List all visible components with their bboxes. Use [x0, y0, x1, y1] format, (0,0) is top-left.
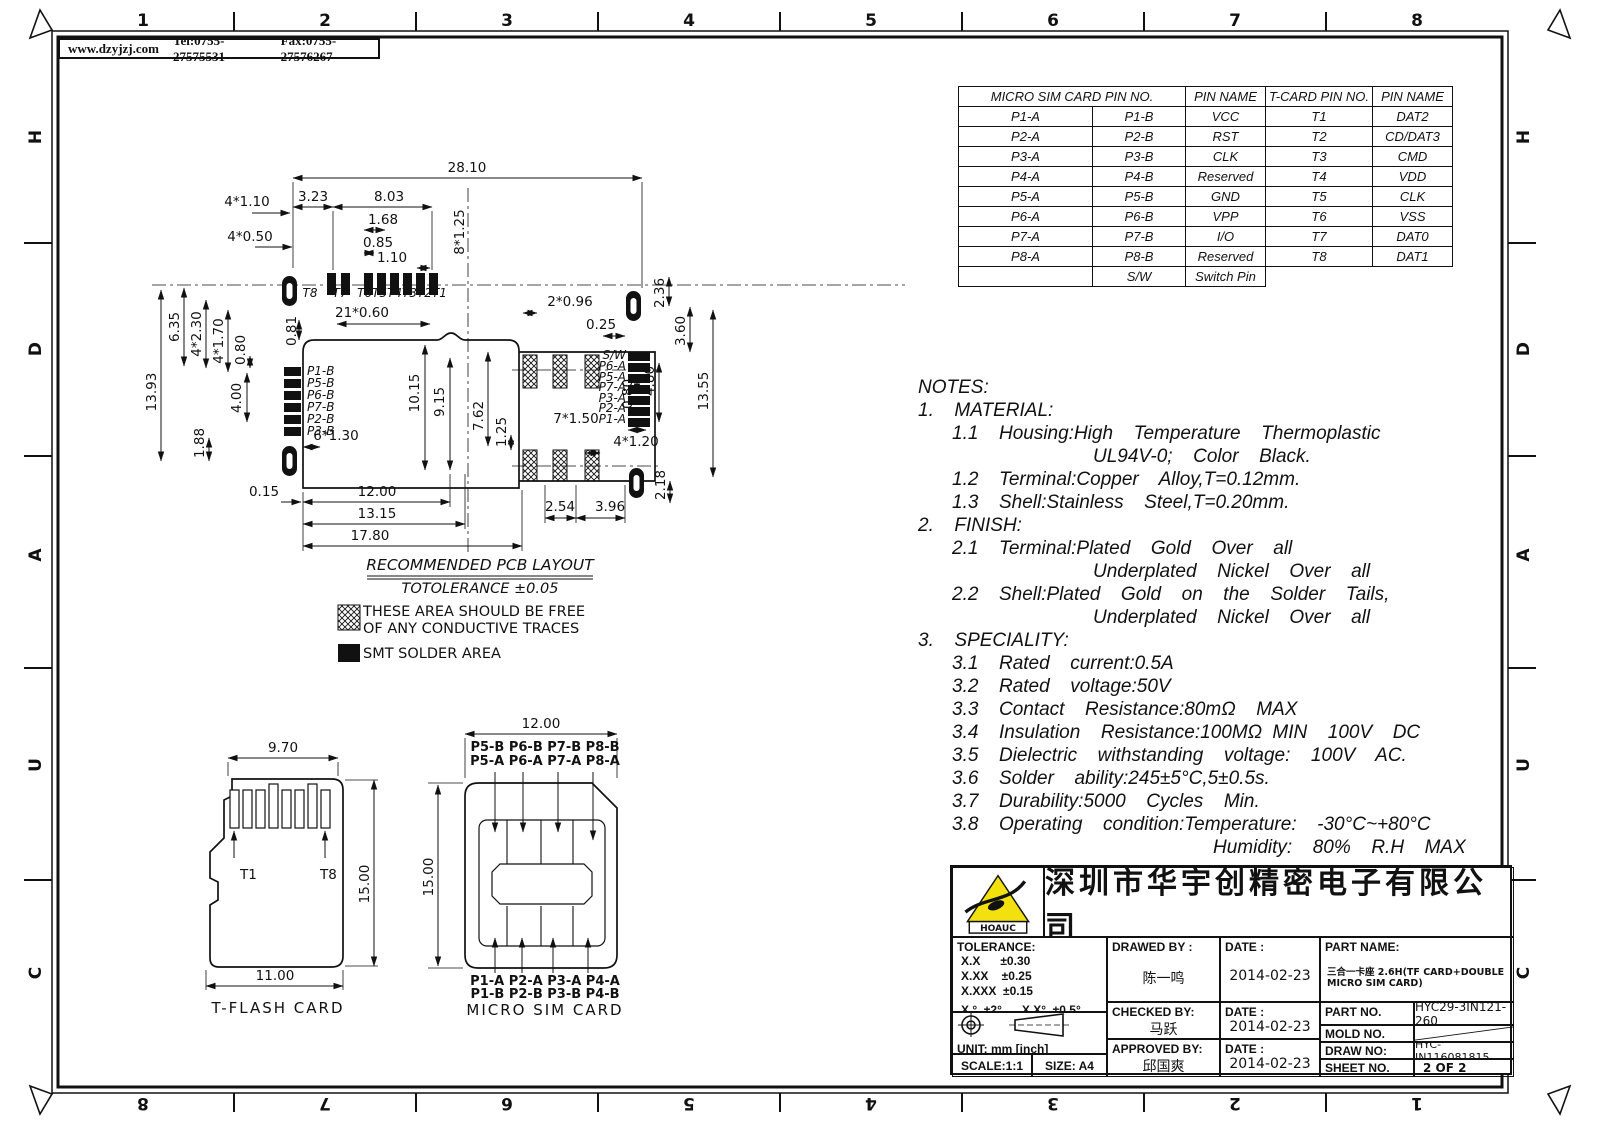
- dim-label: 15.00: [357, 865, 373, 904]
- draw-no-label: DRAW NO:: [1321, 1043, 1413, 1058]
- zone-label: 3: [501, 11, 513, 31]
- note-line: 3.6 Solder ability:245±5°C,5±0.5s.: [952, 767, 1543, 790]
- size-label: SIZE: A4: [1045, 1059, 1094, 1073]
- company-tel: Tel:0755-27575531: [173, 33, 267, 65]
- dim-label: 28.10: [448, 160, 487, 176]
- cell: P1-B: [1093, 107, 1186, 127]
- dim-label: 0.85: [363, 235, 393, 251]
- column-header: MICRO SIM CARD PIN NO.: [959, 87, 1186, 107]
- dim-label: 4*1.10: [224, 194, 269, 210]
- checked-by-name: 马跃: [1108, 1019, 1219, 1039]
- table-row: P2-AP2-BRSTT2CD/DAT3: [959, 127, 1453, 147]
- zone-label: 1: [1411, 1093, 1423, 1113]
- drawing-sheet: 1 2 3 4 5 6 7 8 8 7 6 5 4 3 2 1 H D A U …: [0, 0, 1600, 1131]
- table-row: P8-AP8-BReservedT8DAT1: [959, 247, 1453, 267]
- tolerance-row: X.° ±2° X.X° ±0.5°: [953, 1003, 1106, 1012]
- dim-label: 4.80: [642, 366, 658, 396]
- zone-label: 8: [1411, 11, 1423, 31]
- pad-label: P1-A: [599, 412, 626, 426]
- zone-label: H: [26, 130, 46, 144]
- dim-label: 9.70: [268, 740, 298, 756]
- zone-label: 2: [319, 11, 331, 31]
- cell: DAT0: [1373, 227, 1453, 247]
- cell: VDD: [1373, 167, 1453, 187]
- dim-label: 10.15: [407, 374, 423, 413]
- dim-label: 7*1.50: [553, 411, 598, 427]
- note-line: 2.1 Terminal:Plated Gold Over all: [952, 537, 1543, 560]
- part-no-label: PART NO.: [1321, 1003, 1413, 1019]
- drawed-by-cell: DRAWED BY : 陈一鸣: [1107, 937, 1220, 1002]
- zone-label: D: [1514, 342, 1534, 356]
- checked-by-cell: CHECKED BY: 马跃: [1107, 1002, 1220, 1039]
- cell: P8-B: [1093, 247, 1186, 267]
- pcb-layout-title: RECOMMENDED PCB LAYOUT: [366, 556, 595, 574]
- dim-label: 0.25: [586, 317, 616, 333]
- date-checked-cell: DATE : 2014-02-23: [1220, 1002, 1320, 1039]
- dim-label: 12.00: [358, 484, 397, 500]
- dim-label: 0.80: [233, 335, 249, 365]
- note-line: 2. FINISH:: [918, 514, 1543, 537]
- part-no-value: HYC29-3IN121-260: [1414, 1002, 1514, 1025]
- cell: P6-A: [959, 207, 1093, 227]
- date-drawed: 2014-02-23: [1221, 968, 1319, 984]
- note-line: 1.3 Shell:Stainless Steel,T=0.20mm.: [952, 491, 1543, 514]
- cell: DAT1: [1373, 247, 1453, 267]
- company-logo-icon: HOAUC: [953, 868, 1043, 935]
- dim-label: 1.88: [192, 428, 208, 458]
- pad-label: T8: [303, 286, 318, 300]
- dim-label: 3.96: [595, 499, 625, 515]
- dim-label: 11.00: [256, 968, 295, 984]
- contact-header: www.dzyjzj.com Tel:0755-27575531 Fax:075…: [58, 38, 380, 59]
- legend-text: SMT SOLDER AREA: [363, 646, 501, 662]
- title-block: HOAUC 深圳市华宇创精密电子有限公司 TOLERANCE: X.X ±0.3…: [950, 865, 1512, 1075]
- column-header: PIN NAME: [1373, 87, 1453, 107]
- part-no-label-cell: PART NO.: [1320, 1002, 1414, 1025]
- mold-no-value: [1414, 1025, 1514, 1042]
- legend-text: THESE AREA SHOULD BE FREE: [362, 604, 585, 620]
- zone-label: 4: [683, 11, 695, 31]
- column-header: PIN NAME: [1186, 87, 1266, 107]
- zone-label: 4: [865, 1093, 877, 1113]
- corner-arrow-icon: [1548, 10, 1570, 38]
- zone-label: 8: [137, 1093, 149, 1113]
- cell: CMD: [1373, 147, 1453, 167]
- cell: T7: [1266, 227, 1373, 247]
- cell: P4-A: [959, 167, 1093, 187]
- note-line: 3.4 Insulation Resistance:100MΩ MIN 100V…: [952, 721, 1543, 744]
- pin-row-label: P5-B P6-B P7-B P8-B: [470, 740, 619, 755]
- dim-label: 2*0.96: [547, 294, 592, 310]
- notes-block: NOTES: 1. MATERIAL: 1.1 Housing:High Tem…: [918, 376, 1543, 859]
- cell: [1373, 267, 1453, 287]
- cell: P3-A: [959, 147, 1093, 167]
- zone-label: 6: [1047, 11, 1059, 31]
- zone-label: U: [26, 758, 46, 772]
- note-line: 3.5 Dielectric withstanding voltage: 100…: [952, 744, 1543, 767]
- cell: T5: [1266, 187, 1373, 207]
- note-line: Underplated Nickel Over all: [1093, 560, 1543, 583]
- sheet-no-label: SHEET NO.: [1321, 1060, 1413, 1075]
- logo-text: HOAUC: [980, 924, 1016, 934]
- date-label: DATE :: [1221, 1040, 1319, 1056]
- cell: P4-B: [1093, 167, 1186, 187]
- cell: P8-A: [959, 247, 1093, 267]
- zone-label: 7: [319, 1093, 331, 1113]
- company-name: 深圳市华宇创精密电子有限公司: [1044, 867, 1514, 937]
- cell: CD/DAT3: [1373, 127, 1453, 147]
- dim-label: 4*0.50: [227, 229, 272, 245]
- cell: DAT2: [1373, 107, 1453, 127]
- pad-label: T6T5T4T3T2T1: [357, 286, 447, 300]
- pcb-tolerance-note: TOTOLERANCE ±0.05: [402, 581, 559, 597]
- scale-label: SCALE:1:1: [961, 1059, 1023, 1073]
- zone-label: 3: [1047, 1093, 1059, 1113]
- dim-label: 21*0.60: [335, 305, 389, 321]
- cell: Reserved: [1186, 247, 1266, 267]
- cell: CLK: [1373, 187, 1453, 207]
- logo-cell: HOAUC: [952, 867, 1044, 937]
- table-row: S/WSwitch Pin: [959, 267, 1453, 287]
- corner-arrow-icon: [1548, 1086, 1570, 1114]
- drawed-by-name: 陈一鸣: [1108, 968, 1219, 988]
- pin-label: T8: [319, 867, 337, 883]
- pcb-layout-drawing: .dim{stroke:#111;stroke-width:1;} .ext{s…: [60, 90, 940, 1080]
- dim-label: 9.15: [432, 387, 448, 417]
- cell: T3: [1266, 147, 1373, 167]
- blank-diagonal-icon: [1415, 1026, 1513, 1041]
- zone-label: H: [1514, 130, 1534, 144]
- keepout-swatch: [338, 605, 360, 630]
- date-label: DATE :: [1221, 1003, 1319, 1019]
- pcb-legend: RECOMMENDED PCB LAYOUT TOTOLERANCE ±0.05…: [338, 556, 595, 662]
- dim-label: 3.60: [673, 316, 689, 346]
- pin-row-label: P1-B P2-B P3-B P4-B: [470, 987, 619, 1002]
- mold-no-label-cell: MOLD NO.: [1320, 1025, 1414, 1042]
- cell: Switch Pin: [1186, 267, 1266, 287]
- mold-no-label: MOLD NO.: [1321, 1026, 1413, 1041]
- cell: [959, 267, 1093, 287]
- approved-by-label: APPROVED BY:: [1108, 1040, 1219, 1056]
- dim-label: 4*1.70: [211, 318, 227, 363]
- smt-swatch: [338, 644, 360, 662]
- cell: VSS: [1373, 207, 1453, 227]
- table-header-row: MICRO SIM CARD PIN NO. PIN NAME T-CARD P…: [959, 87, 1453, 107]
- cell: [1266, 267, 1373, 287]
- cell: P2-A: [959, 127, 1093, 147]
- dim-label: 15.00: [421, 858, 437, 897]
- draw-no-value: HYC-IN116081815: [1414, 1042, 1514, 1059]
- date-checked: 2014-02-23: [1221, 1019, 1319, 1035]
- dim-label: 7.62: [471, 401, 487, 431]
- table-row: P3-AP3-BCLKT3CMD: [959, 147, 1453, 167]
- pad-label: P3-B: [307, 424, 334, 438]
- cell: P6-B: [1093, 207, 1186, 227]
- part-name-label: PART NAME:: [1321, 938, 1513, 954]
- date-approved-cell: DATE : 2014-02-23: [1220, 1039, 1320, 1077]
- zone-label: D: [26, 342, 46, 356]
- view-title: MICRO SIM CARD: [466, 1001, 623, 1019]
- part-name-value: 三合一卡座 2.6H(TF CARD+DOUBLE MICRO SIM CARD…: [1321, 954, 1513, 989]
- corner-arrow-icon: [30, 10, 52, 38]
- legend-text: OF ANY CONDUCTIVE TRACES: [363, 621, 579, 637]
- cell: P2-B: [1093, 127, 1186, 147]
- cell: VPP: [1186, 207, 1266, 227]
- dim-label: 3.23: [298, 189, 328, 205]
- pin-label: T1: [239, 867, 257, 883]
- note-line: UL94V-0; Color Black.: [1093, 445, 1543, 468]
- dim-label: 6.35: [167, 312, 183, 342]
- pin-row-label: P5-A P6-A P7-A P8-A: [470, 754, 620, 769]
- sheet-no-value: 2 OF 2: [1414, 1059, 1514, 1077]
- cell: P5-B: [1093, 187, 1186, 207]
- tolerance-row: X.XX ±0.25: [953, 969, 1106, 984]
- cell: T1: [1266, 107, 1373, 127]
- table-row: P4-AP4-BReservedT4VDD: [959, 167, 1453, 187]
- zone-label: 5: [865, 11, 877, 31]
- dim-label: 8.03: [374, 189, 404, 205]
- dim-label: 4*2.30: [189, 311, 205, 356]
- dim-label: 12.00: [522, 716, 561, 732]
- cell: S/W: [1093, 267, 1186, 287]
- table-row: P5-AP5-BGNDT5CLK: [959, 187, 1453, 207]
- scale-cell: SCALE:1:1: [952, 1054, 1032, 1077]
- cell: P1-A: [959, 107, 1093, 127]
- cell: Reserved: [1186, 167, 1266, 187]
- zone-label: C: [26, 967, 46, 979]
- zone-label: 7: [1229, 11, 1241, 31]
- unit-cell: UNIT: mm [inch]: [952, 1012, 1107, 1054]
- table-row: P1-AP1-BVCCT1DAT2: [959, 107, 1453, 127]
- note-line: NOTES:: [918, 376, 1543, 399]
- note-line: 3.8 Operating condition:Temperature: -30…: [952, 813, 1543, 836]
- tolerance-row: X.X ±0.30: [953, 954, 1106, 969]
- cell: P7-B: [1093, 227, 1186, 247]
- sheet-no-label-cell: SHEET NO.: [1320, 1059, 1414, 1077]
- dim-label: 1.25: [494, 417, 510, 447]
- zone-label: A: [26, 548, 46, 562]
- checked-by-label: CHECKED BY:: [1108, 1003, 1219, 1019]
- cell: P7-A: [959, 227, 1093, 247]
- dim-label: 17.80: [351, 528, 390, 544]
- view-title: T-FLASH CARD: [210, 999, 344, 1017]
- dim-label: 0.15: [249, 484, 279, 500]
- tolerance-cell: TOLERANCE: X.X ±0.30 X.XX ±0.25 X.XXX ±0…: [952, 937, 1107, 1012]
- cell: P5-A: [959, 187, 1093, 207]
- cell: T6: [1266, 207, 1373, 227]
- dim-label: 0.81: [284, 316, 300, 346]
- note-line: 3.7 Durability:5000 Cycles Min.: [952, 790, 1543, 813]
- cell: T2: [1266, 127, 1373, 147]
- zone-label: 5: [683, 1093, 695, 1113]
- unit-label: UNIT: mm [inch]: [953, 1042, 1106, 1054]
- cell: GND: [1186, 187, 1266, 207]
- approved-by-cell: APPROVED BY: 邱国爽: [1107, 1039, 1220, 1077]
- cell: VCC: [1186, 107, 1266, 127]
- date-drawed-cell: DATE : 2014-02-23: [1220, 937, 1320, 1002]
- cell: CLK: [1186, 147, 1266, 167]
- approved-by-name: 邱国爽: [1108, 1056, 1219, 1076]
- size-cell: SIZE: A4: [1032, 1054, 1107, 1077]
- dim-label: 2.36: [652, 278, 668, 308]
- dim-label: 1.10: [377, 250, 407, 266]
- dim-label: 2.54: [545, 499, 575, 515]
- note-line: 3.1 Rated current:0.5A: [952, 652, 1543, 675]
- zone-label: 6: [501, 1093, 513, 1113]
- table-row: P7-AP7-BI/OT7DAT0: [959, 227, 1453, 247]
- note-line: 2.2 Shell:Plated Gold on the Solder Tail…: [952, 583, 1543, 606]
- corner-arrow-icon: [30, 1086, 52, 1114]
- dim-label: 13.93: [144, 373, 160, 412]
- pin-assignment-table: MICRO SIM CARD PIN NO. PIN NAME T-CARD P…: [958, 86, 1453, 287]
- company-url: www.dzyjzj.com: [68, 41, 159, 57]
- cell: P3-B: [1093, 147, 1186, 167]
- note-line: 1.1 Housing:High Temperature Thermoplast…: [952, 422, 1543, 445]
- dim-label: 4*1.20: [613, 434, 658, 450]
- tolerance-title: TOLERANCE:: [953, 938, 1106, 954]
- note-line: 3.3 Contact Resistance:80mΩ MAX: [952, 698, 1543, 721]
- drawed-by-label: DRAWED BY :: [1108, 938, 1219, 954]
- micro-sim-card-view: 12.00 15.00 P5-B P6-B P7-B P8-B P5-A P6-…: [421, 716, 624, 1019]
- dim-label: 8*1.25: [452, 209, 468, 254]
- dim-label: 13.15: [358, 506, 397, 522]
- cell: I/O: [1186, 227, 1266, 247]
- dim-label: 2.18: [653, 470, 669, 500]
- column-header: T-CARD PIN NO.: [1266, 87, 1373, 107]
- part-name-cell: PART NAME: 三合一卡座 2.6H(TF CARD+DOUBLE MIC…: [1320, 937, 1514, 1002]
- date-label: DATE :: [1221, 938, 1319, 954]
- note-line: 3.2 Rated voltage:50V: [952, 675, 1543, 698]
- zone-label: 2: [1229, 1093, 1241, 1113]
- pad-label: T7: [333, 286, 348, 300]
- company-fax: Fax:0755-27576267: [281, 33, 378, 65]
- tolerance-row: X.XXX ±0.15: [953, 984, 1106, 999]
- date-approved: 2014-02-23: [1221, 1056, 1319, 1072]
- table-row: P6-AP6-BVPPT6VSS: [959, 207, 1453, 227]
- note-line: Humidity: 80% R.H MAX: [1213, 836, 1543, 859]
- draw-no-label-cell: DRAW NO:: [1320, 1042, 1414, 1059]
- cell: RST: [1186, 127, 1266, 147]
- note-line: 1.2 Terminal:Copper Alloy,T=0.12mm.: [952, 468, 1543, 491]
- zone-label: 1: [137, 11, 149, 31]
- cell: T4: [1266, 167, 1373, 187]
- note-line: 3. SPECIALITY:: [918, 629, 1543, 652]
- cell: T8: [1266, 247, 1373, 267]
- projection-symbol-icon: [953, 1013, 1103, 1037]
- dim-label: 4.00: [229, 383, 245, 413]
- zone-label: C: [1514, 967, 1534, 979]
- dim-label: 1.68: [368, 212, 398, 228]
- tflash-card-view: 9.70 15.00 11.00 T1 T8 T-FLASH CARD: [206, 740, 378, 1017]
- note-line: Underplated Nickel Over all: [1093, 606, 1543, 629]
- note-line: 1. MATERIAL:: [918, 399, 1543, 422]
- dim-label: 13.55: [696, 372, 712, 411]
